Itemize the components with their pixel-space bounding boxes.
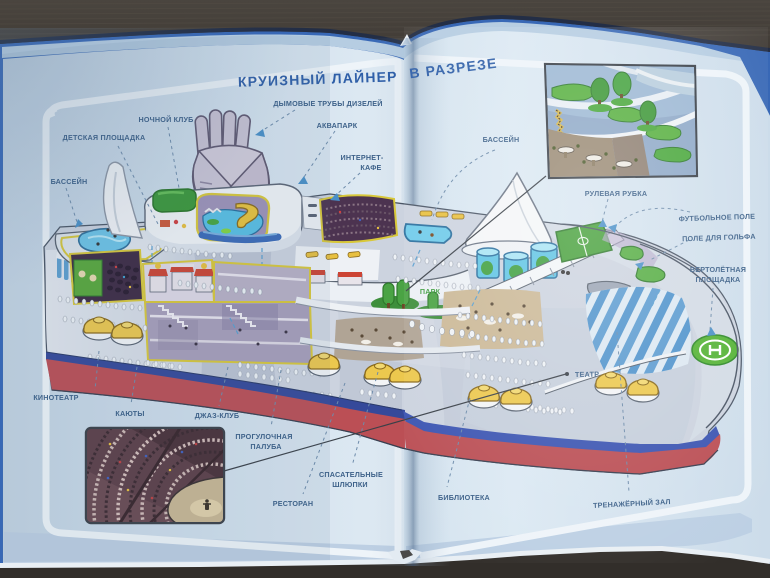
svg-text:ШЛЮПКИ: ШЛЮПКИ — [332, 480, 368, 489]
svg-text:КАФЕ: КАФЕ — [360, 163, 381, 172]
svg-text:ИНТЕРНЕТ-: ИНТЕРНЕТ- — [341, 153, 384, 162]
